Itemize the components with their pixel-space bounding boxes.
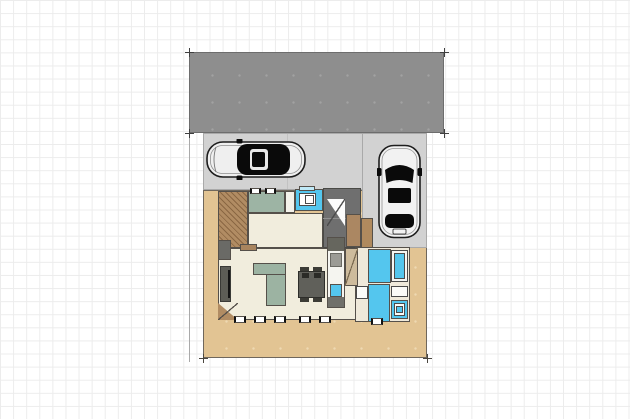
roof-corner-mark-se xyxy=(440,129,449,138)
carport-roof xyxy=(189,52,444,133)
storage-room xyxy=(248,191,285,213)
tv-screen-line xyxy=(228,270,230,298)
shower-unit-drain xyxy=(396,306,403,313)
window-north-1 xyxy=(250,188,261,194)
small-room xyxy=(285,191,295,213)
car-right-icon xyxy=(377,144,422,239)
washroom-floor xyxy=(368,284,390,322)
porch-side-strip xyxy=(361,218,373,248)
roof-corner-mark-ne xyxy=(440,48,449,57)
bathroom-floor xyxy=(368,249,391,283)
kitchen-counter-end xyxy=(328,297,344,307)
shoe-cabinet xyxy=(346,214,361,247)
corridor xyxy=(248,213,323,248)
window-south-2 xyxy=(254,316,266,323)
tv-wall-corner xyxy=(218,240,231,260)
living-door xyxy=(240,244,257,251)
sanitary-door-diagonal xyxy=(345,248,358,286)
roof-corner-mark-nw xyxy=(185,48,194,57)
window-south-6 xyxy=(371,318,383,325)
washing-machine xyxy=(356,286,368,299)
lot-corner-mark-se xyxy=(423,354,432,363)
kitchen-sink xyxy=(330,284,342,297)
table-item-1 xyxy=(302,273,309,278)
window-north-2 xyxy=(265,188,276,194)
toilet-window xyxy=(299,186,315,191)
window-south-4 xyxy=(299,316,311,323)
window-south-5 xyxy=(319,316,331,323)
sofa-counter-leg xyxy=(266,274,286,306)
kitchen-appliance xyxy=(330,253,342,267)
refrigerator xyxy=(328,238,344,251)
window-south-3 xyxy=(274,316,286,323)
window-south-1 xyxy=(234,316,246,323)
site-plan-canvas xyxy=(0,0,630,419)
roof-corner-mark-sw xyxy=(185,129,194,138)
car-left-icon xyxy=(206,139,307,180)
vanity-counter xyxy=(391,286,408,297)
entrance-arrow-diagonal xyxy=(327,199,345,226)
lot-corner-mark-sw xyxy=(199,354,208,363)
table-item-2 xyxy=(314,273,321,278)
bathtub-water xyxy=(394,253,405,279)
toilet-bowl xyxy=(305,195,314,204)
